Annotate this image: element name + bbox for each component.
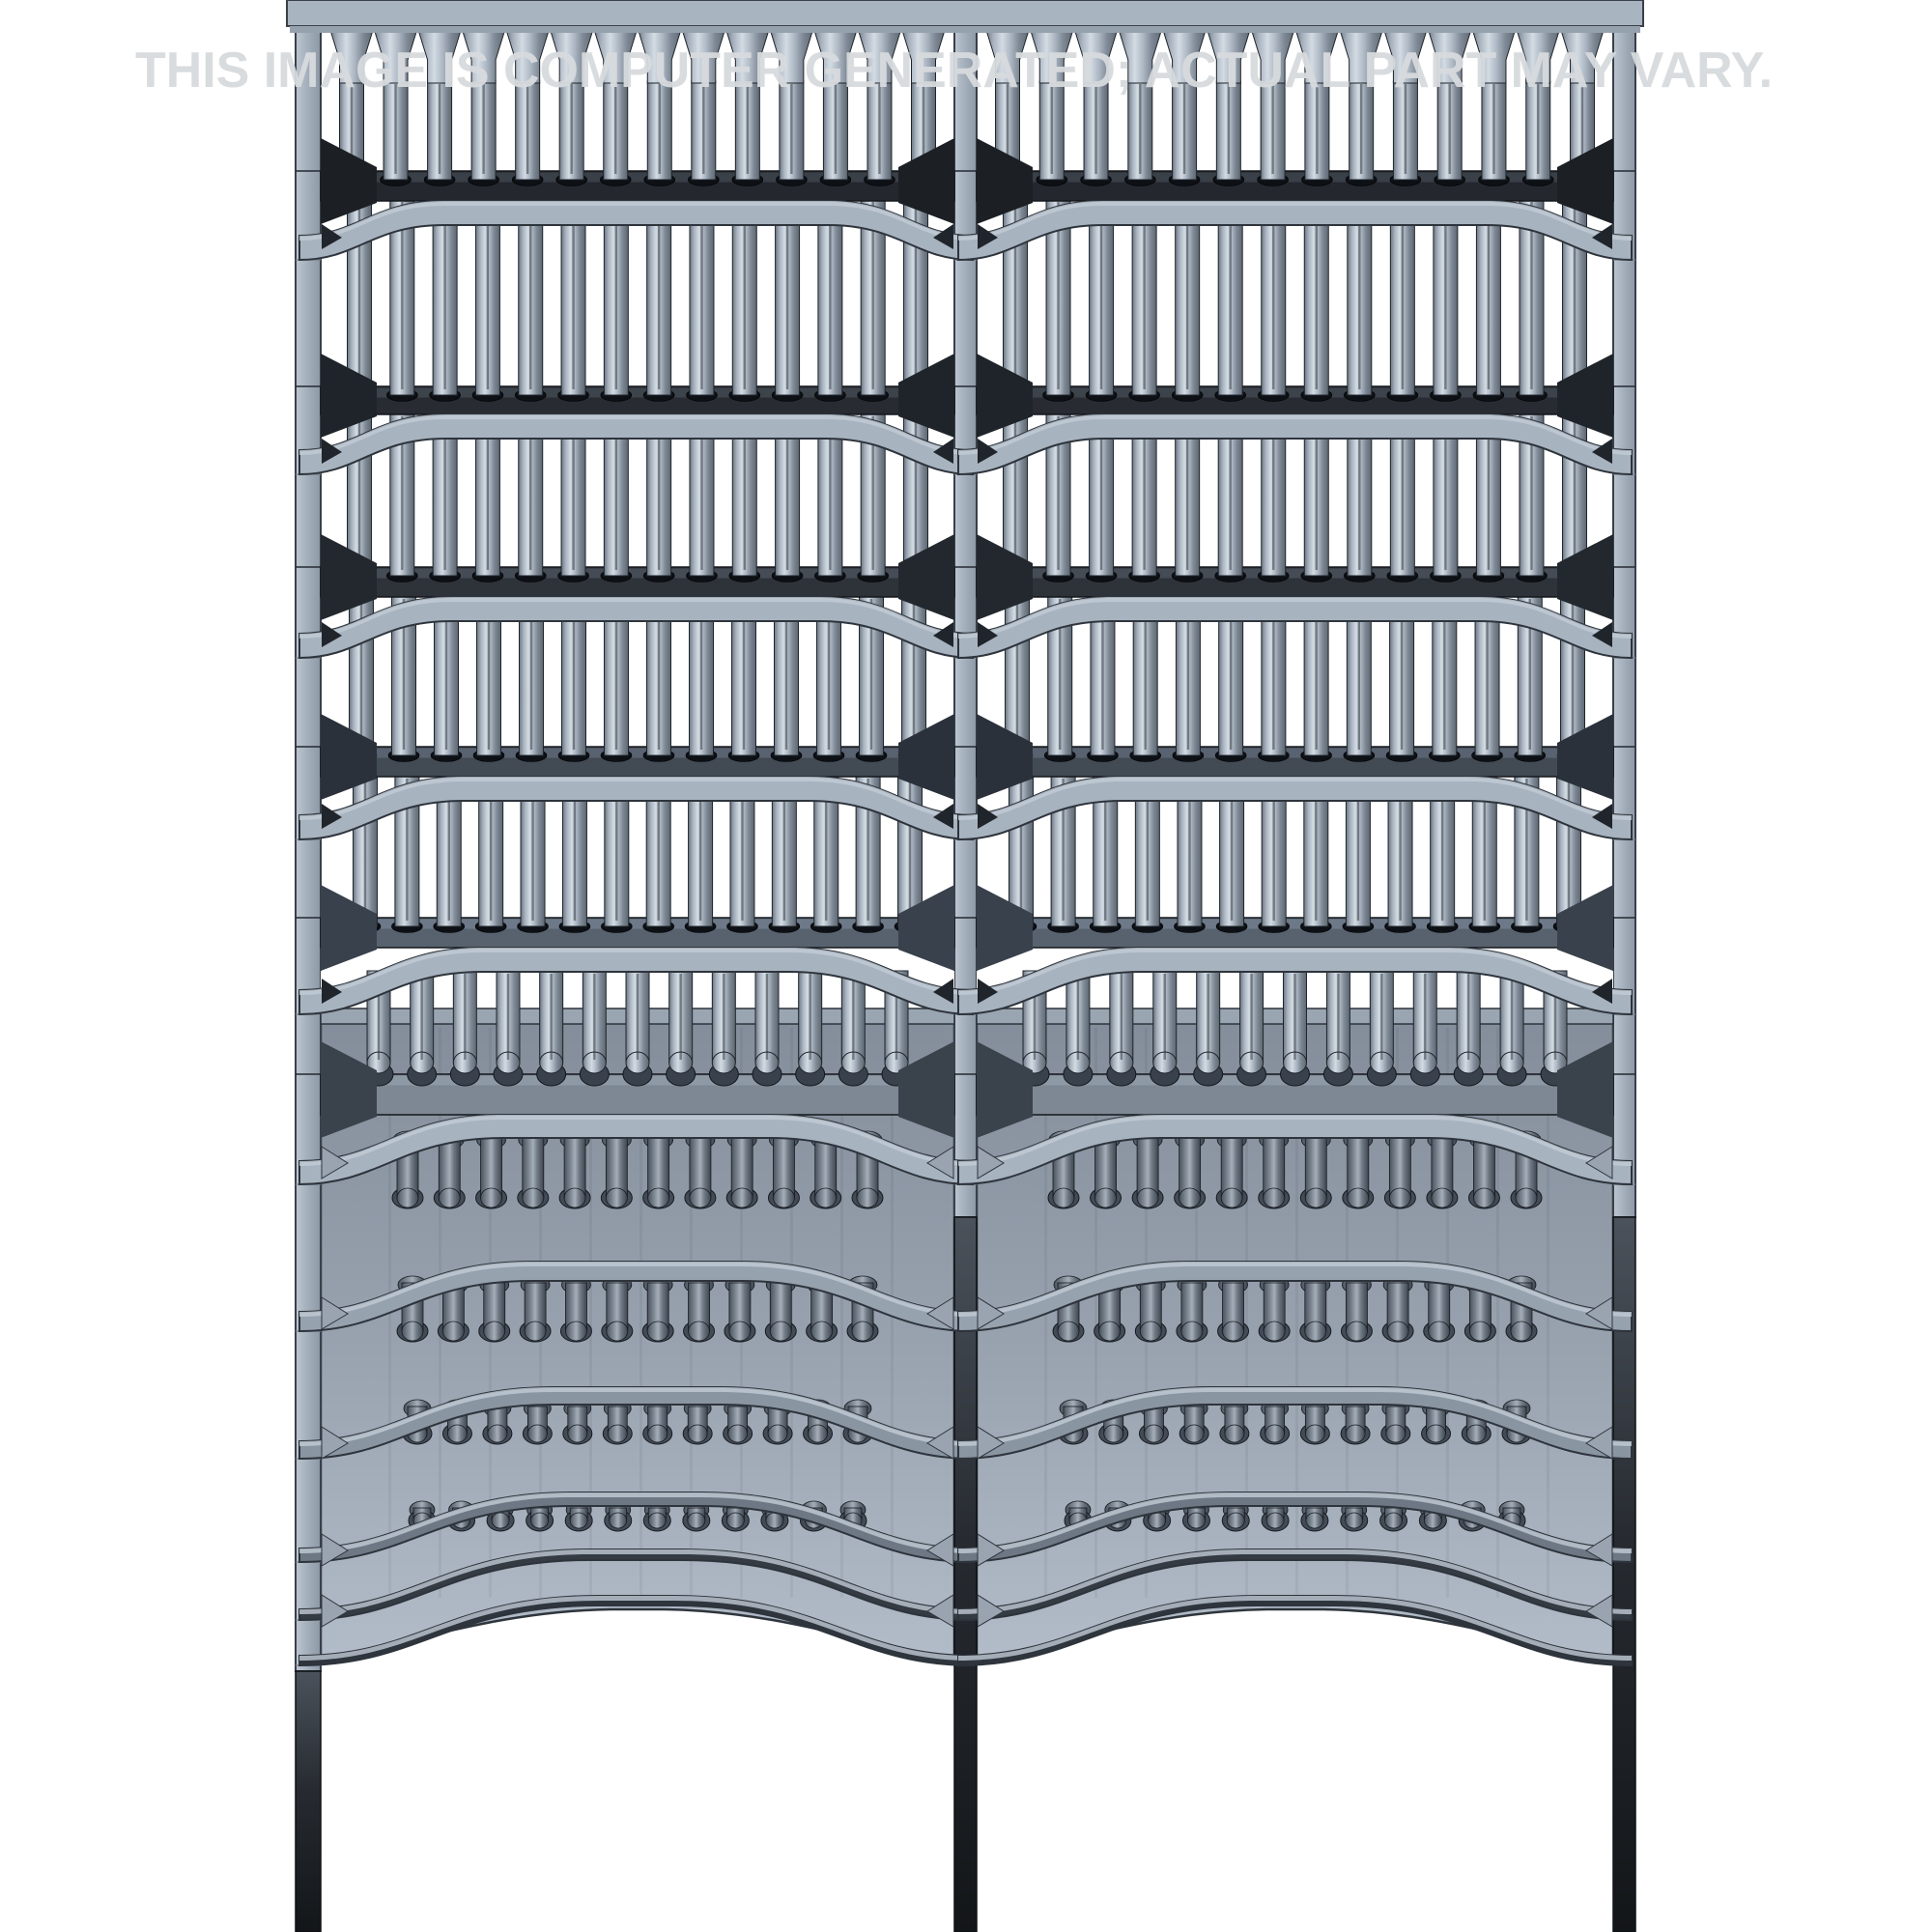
watermark-text: THIS IMAGE IS COMPUTER GENERATED; ACTUAL… — [135, 43, 1773, 99]
center-post — [954, 0, 977, 1217]
rack-3d-render: THIS IMAGE IS COMPUTER GENERATED; ACTUAL… — [0, 0, 1932, 1932]
cad-product-render: THIS IMAGE IS COMPUTER GENERATED; ACTUAL… — [0, 0, 1932, 1932]
right-post — [1613, 0, 1635, 1217]
top-rail-lip — [290, 26, 1640, 33]
tier-3-right — [958, 413, 1632, 658]
left-post-leg — [296, 1671, 321, 1932]
top-rail — [287, 0, 1643, 33]
tier-2-right — [958, 199, 1632, 474]
tier-3-left — [299, 413, 973, 658]
tier-2-left — [299, 199, 973, 474]
rack-geometry — [287, 0, 1643, 1932]
tier-4-right — [958, 596, 1632, 839]
top-rail-bar — [287, 0, 1643, 26]
tier-4-left — [299, 596, 973, 839]
